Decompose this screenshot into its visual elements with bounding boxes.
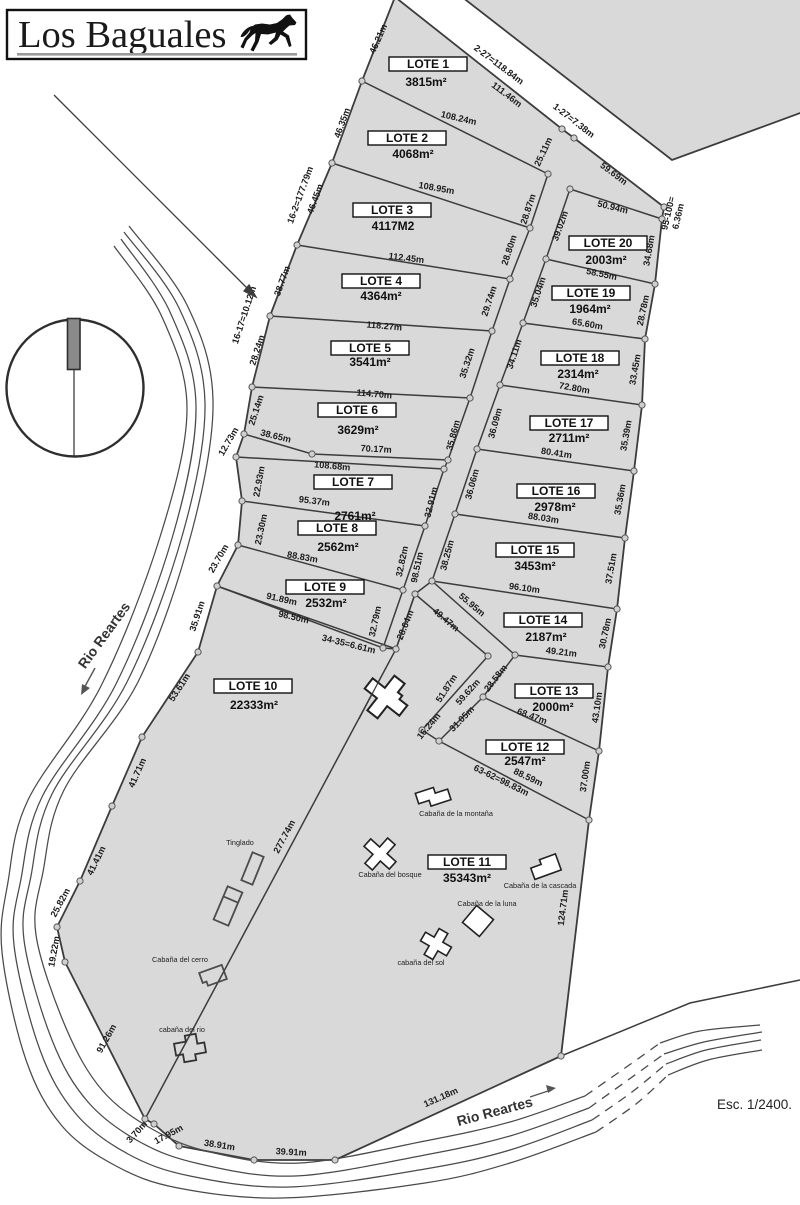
svg-text:1964m²: 1964m² bbox=[569, 302, 610, 316]
svg-text:LOTE 16: LOTE 16 bbox=[532, 484, 581, 498]
svg-text:LOTE 17: LOTE 17 bbox=[545, 416, 594, 430]
svg-text:35343m²: 35343m² bbox=[443, 871, 491, 885]
svg-text:Los Baguales: Los Baguales bbox=[18, 14, 227, 56]
svg-text:Cabaña de la cascada: Cabaña de la cascada bbox=[504, 881, 578, 890]
svg-text:Cabaña del cerro: Cabaña del cerro bbox=[152, 955, 208, 964]
svg-text:LOTE 18: LOTE 18 bbox=[556, 351, 605, 365]
svg-text:3541m²: 3541m² bbox=[349, 355, 390, 369]
svg-text:Cabaña del bosque: Cabaña del bosque bbox=[358, 870, 421, 879]
svg-text:39.91m: 39.91m bbox=[275, 1146, 307, 1158]
svg-text:22333m²: 22333m² bbox=[230, 698, 278, 712]
svg-text:70.17m: 70.17m bbox=[360, 443, 392, 455]
svg-text:LOTE 15: LOTE 15 bbox=[511, 543, 560, 557]
svg-text:LOTE 12: LOTE 12 bbox=[501, 740, 550, 754]
svg-text:Cabaña de la montaña: Cabaña de la montaña bbox=[419, 809, 494, 818]
svg-text:19.22m: 19.22m bbox=[46, 935, 61, 967]
svg-text:3.70m: 3.70m bbox=[124, 1119, 149, 1145]
svg-text:LOTE 14: LOTE 14 bbox=[519, 613, 568, 627]
svg-text:LOTE 3: LOTE 3 bbox=[371, 203, 413, 217]
svg-text:3453m²: 3453m² bbox=[514, 559, 555, 573]
svg-text:2547m²: 2547m² bbox=[504, 754, 545, 768]
svg-text:2711m²: 2711m² bbox=[549, 431, 590, 445]
svg-text:35.91m: 35.91m bbox=[188, 600, 207, 633]
svg-text:2562m²: 2562m² bbox=[317, 540, 358, 554]
svg-text:2532m²: 2532m² bbox=[305, 596, 346, 610]
svg-text:cabaña del rio: cabaña del rio bbox=[159, 1025, 205, 1034]
svg-text:LOTE 19: LOTE 19 bbox=[567, 286, 616, 300]
svg-text:LOTE 10: LOTE 10 bbox=[229, 679, 278, 693]
svg-text:LOTE 9: LOTE 9 bbox=[304, 580, 346, 594]
svg-text:4117M2: 4117M2 bbox=[372, 219, 415, 233]
svg-text:2187m²: 2187m² bbox=[525, 630, 566, 644]
svg-text:cabaña del sol: cabaña del sol bbox=[397, 958, 444, 967]
svg-text:Tinglado: Tinglado bbox=[226, 838, 254, 847]
svg-text:Cabaña de la luna: Cabaña de la luna bbox=[457, 899, 517, 908]
svg-text:2314m²: 2314m² bbox=[557, 367, 598, 381]
svg-text:2000m²: 2000m² bbox=[532, 700, 573, 714]
svg-text:4068m²: 4068m² bbox=[392, 147, 433, 161]
svg-text:LOTE 8: LOTE 8 bbox=[316, 521, 358, 535]
svg-text:LOTE 4: LOTE 4 bbox=[360, 274, 402, 288]
svg-text:LOTE 7: LOTE 7 bbox=[332, 475, 374, 489]
svg-text:2978m²: 2978m² bbox=[534, 500, 575, 514]
svg-text:LOTE 11: LOTE 11 bbox=[443, 855, 491, 869]
svg-text:LOTE 2: LOTE 2 bbox=[386, 131, 428, 145]
svg-text:3815m²: 3815m² bbox=[405, 75, 446, 89]
svg-text:Esc. 1/2400.: Esc. 1/2400. bbox=[717, 1097, 792, 1112]
svg-text:4364m²: 4364m² bbox=[360, 289, 401, 303]
svg-text:LOTE 1: LOTE 1 bbox=[407, 57, 449, 71]
svg-text:3629m²: 3629m² bbox=[337, 423, 378, 437]
svg-text:LOTE 5: LOTE 5 bbox=[349, 341, 391, 355]
svg-text:LOTE 6: LOTE 6 bbox=[336, 403, 378, 417]
svg-text:LOTE 20: LOTE 20 bbox=[584, 236, 633, 250]
svg-text:2003m²: 2003m² bbox=[585, 253, 626, 267]
svg-text:LOTE 13: LOTE 13 bbox=[530, 684, 579, 698]
